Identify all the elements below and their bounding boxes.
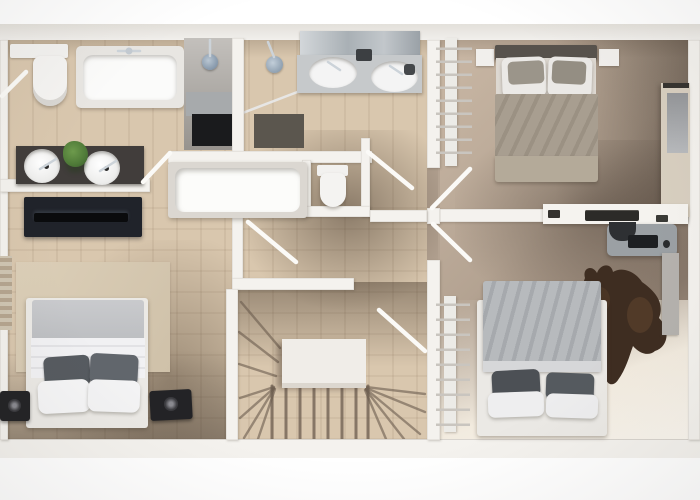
- bath-mat: [254, 114, 304, 148]
- ladder-rack-top-rungs: [436, 42, 472, 154]
- bed-top-pillow-gray-1: [507, 60, 544, 85]
- floor-plan-render: [0, 0, 700, 500]
- vanity-tap-item: [356, 49, 372, 61]
- basin-drain-right: [104, 166, 109, 171]
- round-basin-left: [24, 149, 60, 183]
- shower-head: [202, 54, 218, 70]
- stair-landing-front: [282, 383, 366, 388]
- wc-toilet-bowl: [320, 173, 346, 207]
- bed-left-blanket: [32, 300, 144, 342]
- divider-wall-node: [427, 208, 440, 224]
- nightstand-left: [476, 49, 494, 66]
- doorway-floor-bottom: [427, 224, 440, 260]
- west-wall: [0, 40, 8, 440]
- shower-head-2: [266, 56, 283, 73]
- shower-floor-mat: [192, 114, 232, 146]
- desk-item-small: [548, 210, 560, 218]
- speaker-left-driver: [8, 399, 21, 412]
- gray-door-panel: [662, 253, 679, 335]
- stairwell-west-wall: [226, 289, 238, 440]
- basin-drain-left: [44, 164, 49, 169]
- bed-top-pillow-gray-2: [551, 60, 586, 85]
- shower-bench: [186, 92, 232, 116]
- bed-bottom-pillow-white-2: [546, 393, 599, 419]
- round-basin-right: [84, 151, 120, 185]
- bathtub-basin: [83, 55, 177, 100]
- mouse: [663, 240, 670, 248]
- wardrobe-mirror: [667, 93, 688, 153]
- radiator: [0, 256, 12, 330]
- nightstand-right: [599, 49, 619, 66]
- bed-left-pillow-white-1: [37, 379, 91, 415]
- vanity-accessory: [404, 64, 415, 75]
- tv-screen: [34, 213, 128, 222]
- doorway-floor-top: [427, 168, 440, 208]
- hall-south-stub-wall: [370, 210, 427, 222]
- wardrobe-top-trim: [663, 83, 689, 88]
- ladder-rack-bottom-rungs: [436, 302, 470, 426]
- bathtub-island-basin: [175, 168, 300, 212]
- bed-bottom-duvet: [483, 281, 601, 371]
- bed-bottom-pillow-white-1: [488, 391, 545, 418]
- toilet-bowl: [33, 56, 67, 106]
- vanity-basin-left: [309, 57, 357, 88]
- speaker-right-driver: [164, 397, 178, 411]
- plant: [63, 141, 88, 167]
- bed-top-duvet-foot: [495, 156, 598, 182]
- keyboard: [628, 235, 658, 248]
- south-wall: [0, 440, 700, 458]
- wc-south-wall: [302, 206, 370, 217]
- bed-left-pillow-white-2: [87, 379, 140, 413]
- stair-landing: [282, 339, 366, 385]
- desk-laptop: [585, 210, 639, 221]
- bathrooms-partition-wall: [232, 38, 244, 163]
- stairwell-north-wall: [232, 278, 354, 290]
- desk-item-right: [656, 215, 668, 222]
